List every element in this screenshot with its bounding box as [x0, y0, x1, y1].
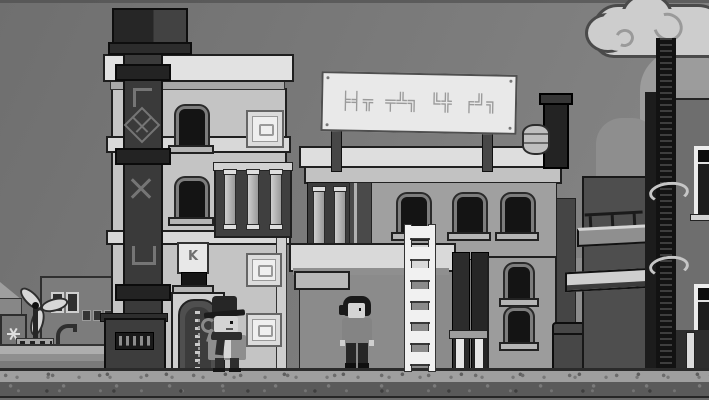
window-sill	[495, 232, 539, 241]
window	[176, 106, 208, 148]
pipe-bracket-symbol-icon	[133, 88, 152, 107]
npc-mouth	[226, 328, 233, 330]
npc-shirt	[224, 340, 231, 358]
plaque-glyph-icon	[259, 124, 274, 136]
sidewalk-band	[0, 371, 709, 382]
left-building-corner-trim	[276, 230, 287, 374]
column	[270, 172, 282, 226]
player-hand	[340, 340, 345, 346]
barrel[interactable]	[522, 124, 550, 155]
npc-foot	[229, 368, 241, 372]
road-band	[0, 354, 106, 361]
wrench-icon	[201, 318, 216, 333]
window-sill	[168, 217, 214, 226]
window-sill	[499, 342, 539, 351]
window-sill	[168, 145, 214, 154]
window-white-frame	[694, 146, 709, 220]
billboard-glyphs: ╞╡╦ ╤╩╗ ╚╬ ╒╝╗	[340, 91, 498, 114]
column	[334, 189, 346, 251]
window-sill	[690, 214, 709, 221]
game-scene: K	[0, 0, 709, 400]
ladder[interactable]	[404, 224, 436, 372]
ladder-rungs	[410, 226, 430, 372]
window-sill	[447, 232, 491, 241]
pipe-collar	[115, 64, 171, 81]
player-shoe	[345, 363, 356, 368]
column	[247, 172, 259, 226]
plaque-glyph-icon	[258, 265, 273, 277]
player-character[interactable]	[337, 296, 377, 372]
vent-grille	[115, 332, 154, 350]
background-sliver	[556, 198, 576, 328]
road-curb	[0, 344, 106, 354]
npc-scarf	[211, 332, 242, 340]
glyph-billboard[interactable]: ╞╡╦ ╤╩╗ ╚╬ ╒╝╗	[320, 71, 517, 135]
npc-foot	[213, 368, 225, 372]
player-face	[348, 303, 365, 318]
pipe-collar	[115, 284, 171, 301]
npc-head	[214, 316, 238, 333]
player-eye	[359, 308, 361, 311]
window	[505, 264, 533, 302]
background-window-small	[82, 310, 91, 321]
pipe-collar	[115, 148, 171, 165]
ground-body	[0, 382, 709, 396]
player-hand	[369, 340, 374, 346]
npc-eye	[230, 321, 233, 324]
window	[502, 194, 534, 236]
pipe-x-symbol-icon	[129, 176, 153, 200]
windmill-hub	[32, 302, 39, 309]
column	[224, 172, 236, 226]
player-hair-tuft	[339, 305, 346, 315]
cloud	[592, 4, 709, 58]
npc-character[interactable]	[202, 294, 254, 372]
right-building-parapet	[674, 90, 709, 100]
window	[505, 308, 533, 346]
column	[313, 189, 325, 251]
shutter-window: K	[177, 242, 209, 274]
side-ledge	[294, 271, 350, 290]
screen-top-edge	[0, 0, 709, 3]
window	[176, 178, 208, 220]
exhaust-pipe-flare	[108, 42, 192, 55]
door-zipper-pattern	[195, 311, 200, 368]
window	[454, 194, 486, 236]
player-shirt	[342, 318, 372, 344]
plaque-glyph-icon	[258, 325, 273, 337]
player-leg	[346, 343, 356, 364]
roof-chimney-cap	[539, 93, 573, 105]
wall-plaque	[246, 253, 282, 287]
player-leg	[358, 343, 368, 364]
player-shoe	[358, 363, 369, 368]
caged-service-pipe	[656, 38, 676, 372]
window-sill	[499, 298, 539, 307]
pipe-u-symbol-icon	[132, 246, 156, 265]
pipe-rung-texture	[660, 38, 672, 372]
colonnade	[214, 162, 292, 238]
wall-plaque	[246, 110, 284, 148]
